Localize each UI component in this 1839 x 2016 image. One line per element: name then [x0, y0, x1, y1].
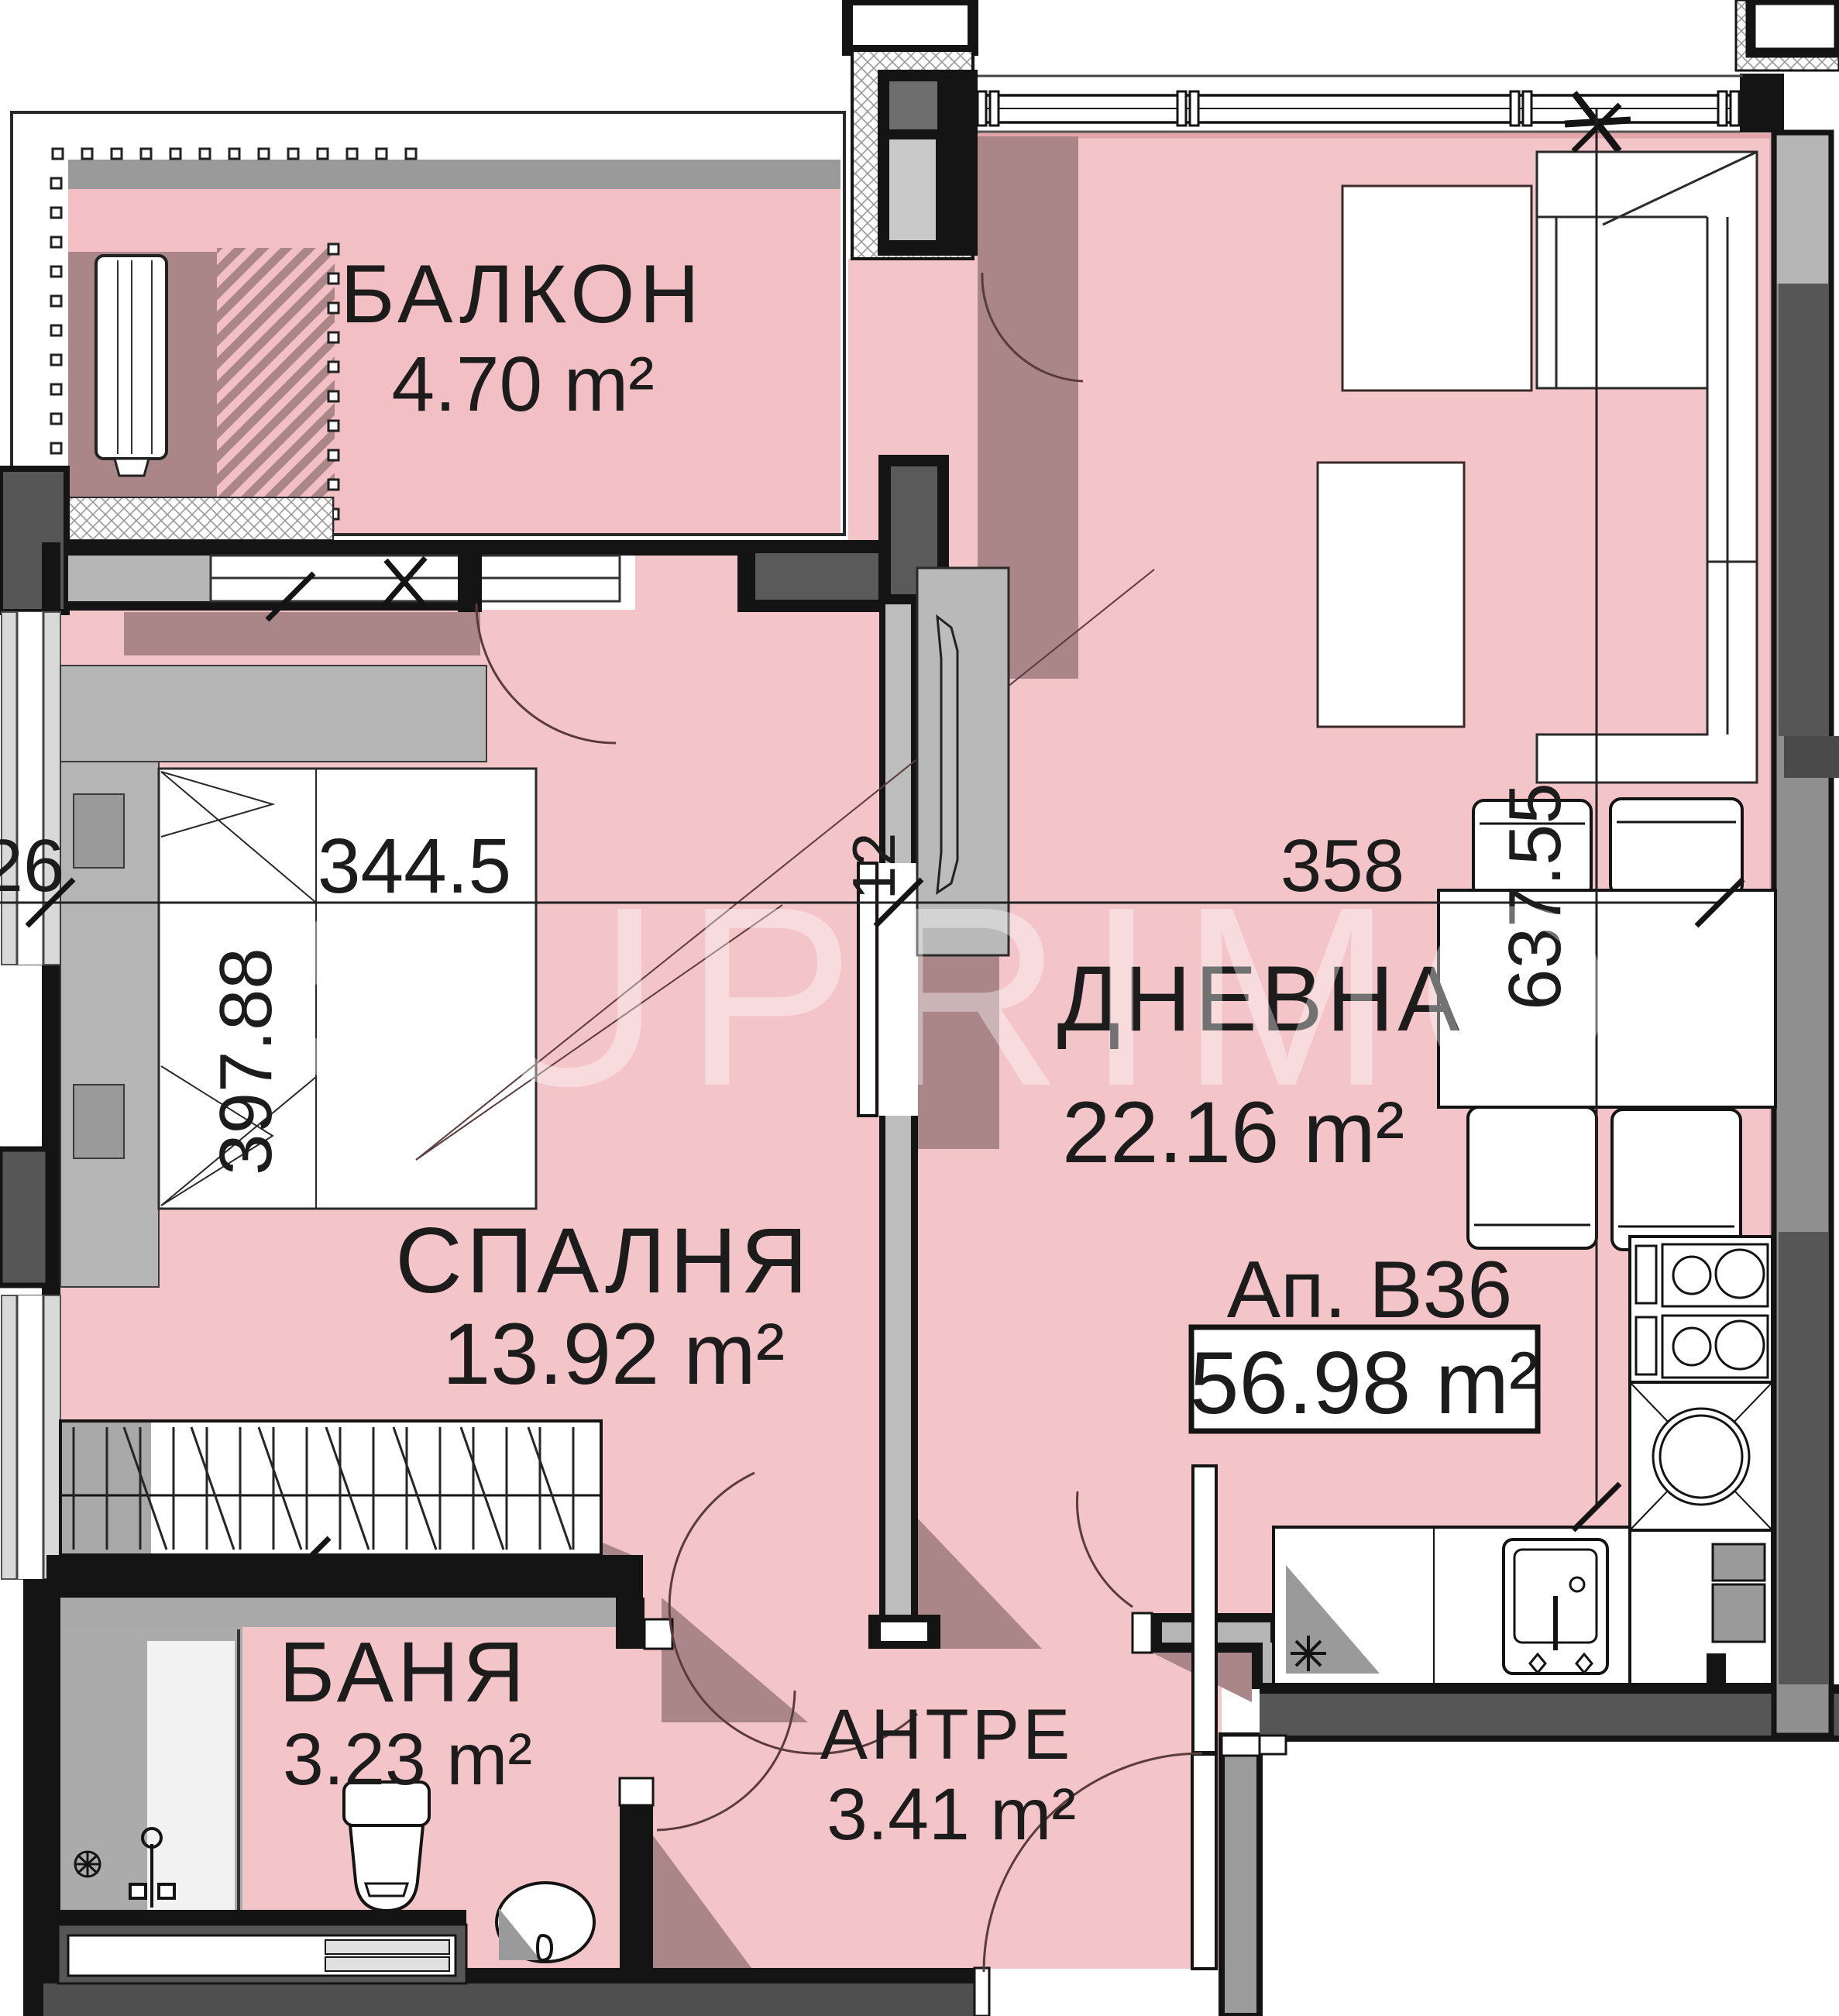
- svg-text:БАЛКОН: БАЛКОН: [340, 247, 703, 340]
- svg-text:СПАЛНЯ: СПАЛНЯ: [395, 1209, 812, 1312]
- svg-text:SUPRIMO: SUPRIMO: [283, 853, 1638, 1139]
- svg-text:3.41 m²: 3.41 m²: [827, 1773, 1076, 1856]
- svg-text:26: 26: [0, 824, 64, 907]
- svg-text:Ап. B36: Ап. B36: [1227, 1245, 1513, 1335]
- svg-text:13.92 m²: 13.92 m²: [442, 1306, 785, 1402]
- svg-text:397.88: 397.88: [205, 948, 287, 1175]
- svg-text:4.70 m²: 4.70 m²: [391, 341, 654, 428]
- svg-text:АНТРЕ: АНТРЕ: [820, 1695, 1074, 1774]
- svg-text:56.98 m²: 56.98 m²: [1190, 1334, 1538, 1433]
- svg-text:3.23 m²: 3.23 m²: [283, 1718, 532, 1801]
- svg-text:БАНЯ: БАНЯ: [279, 1625, 528, 1720]
